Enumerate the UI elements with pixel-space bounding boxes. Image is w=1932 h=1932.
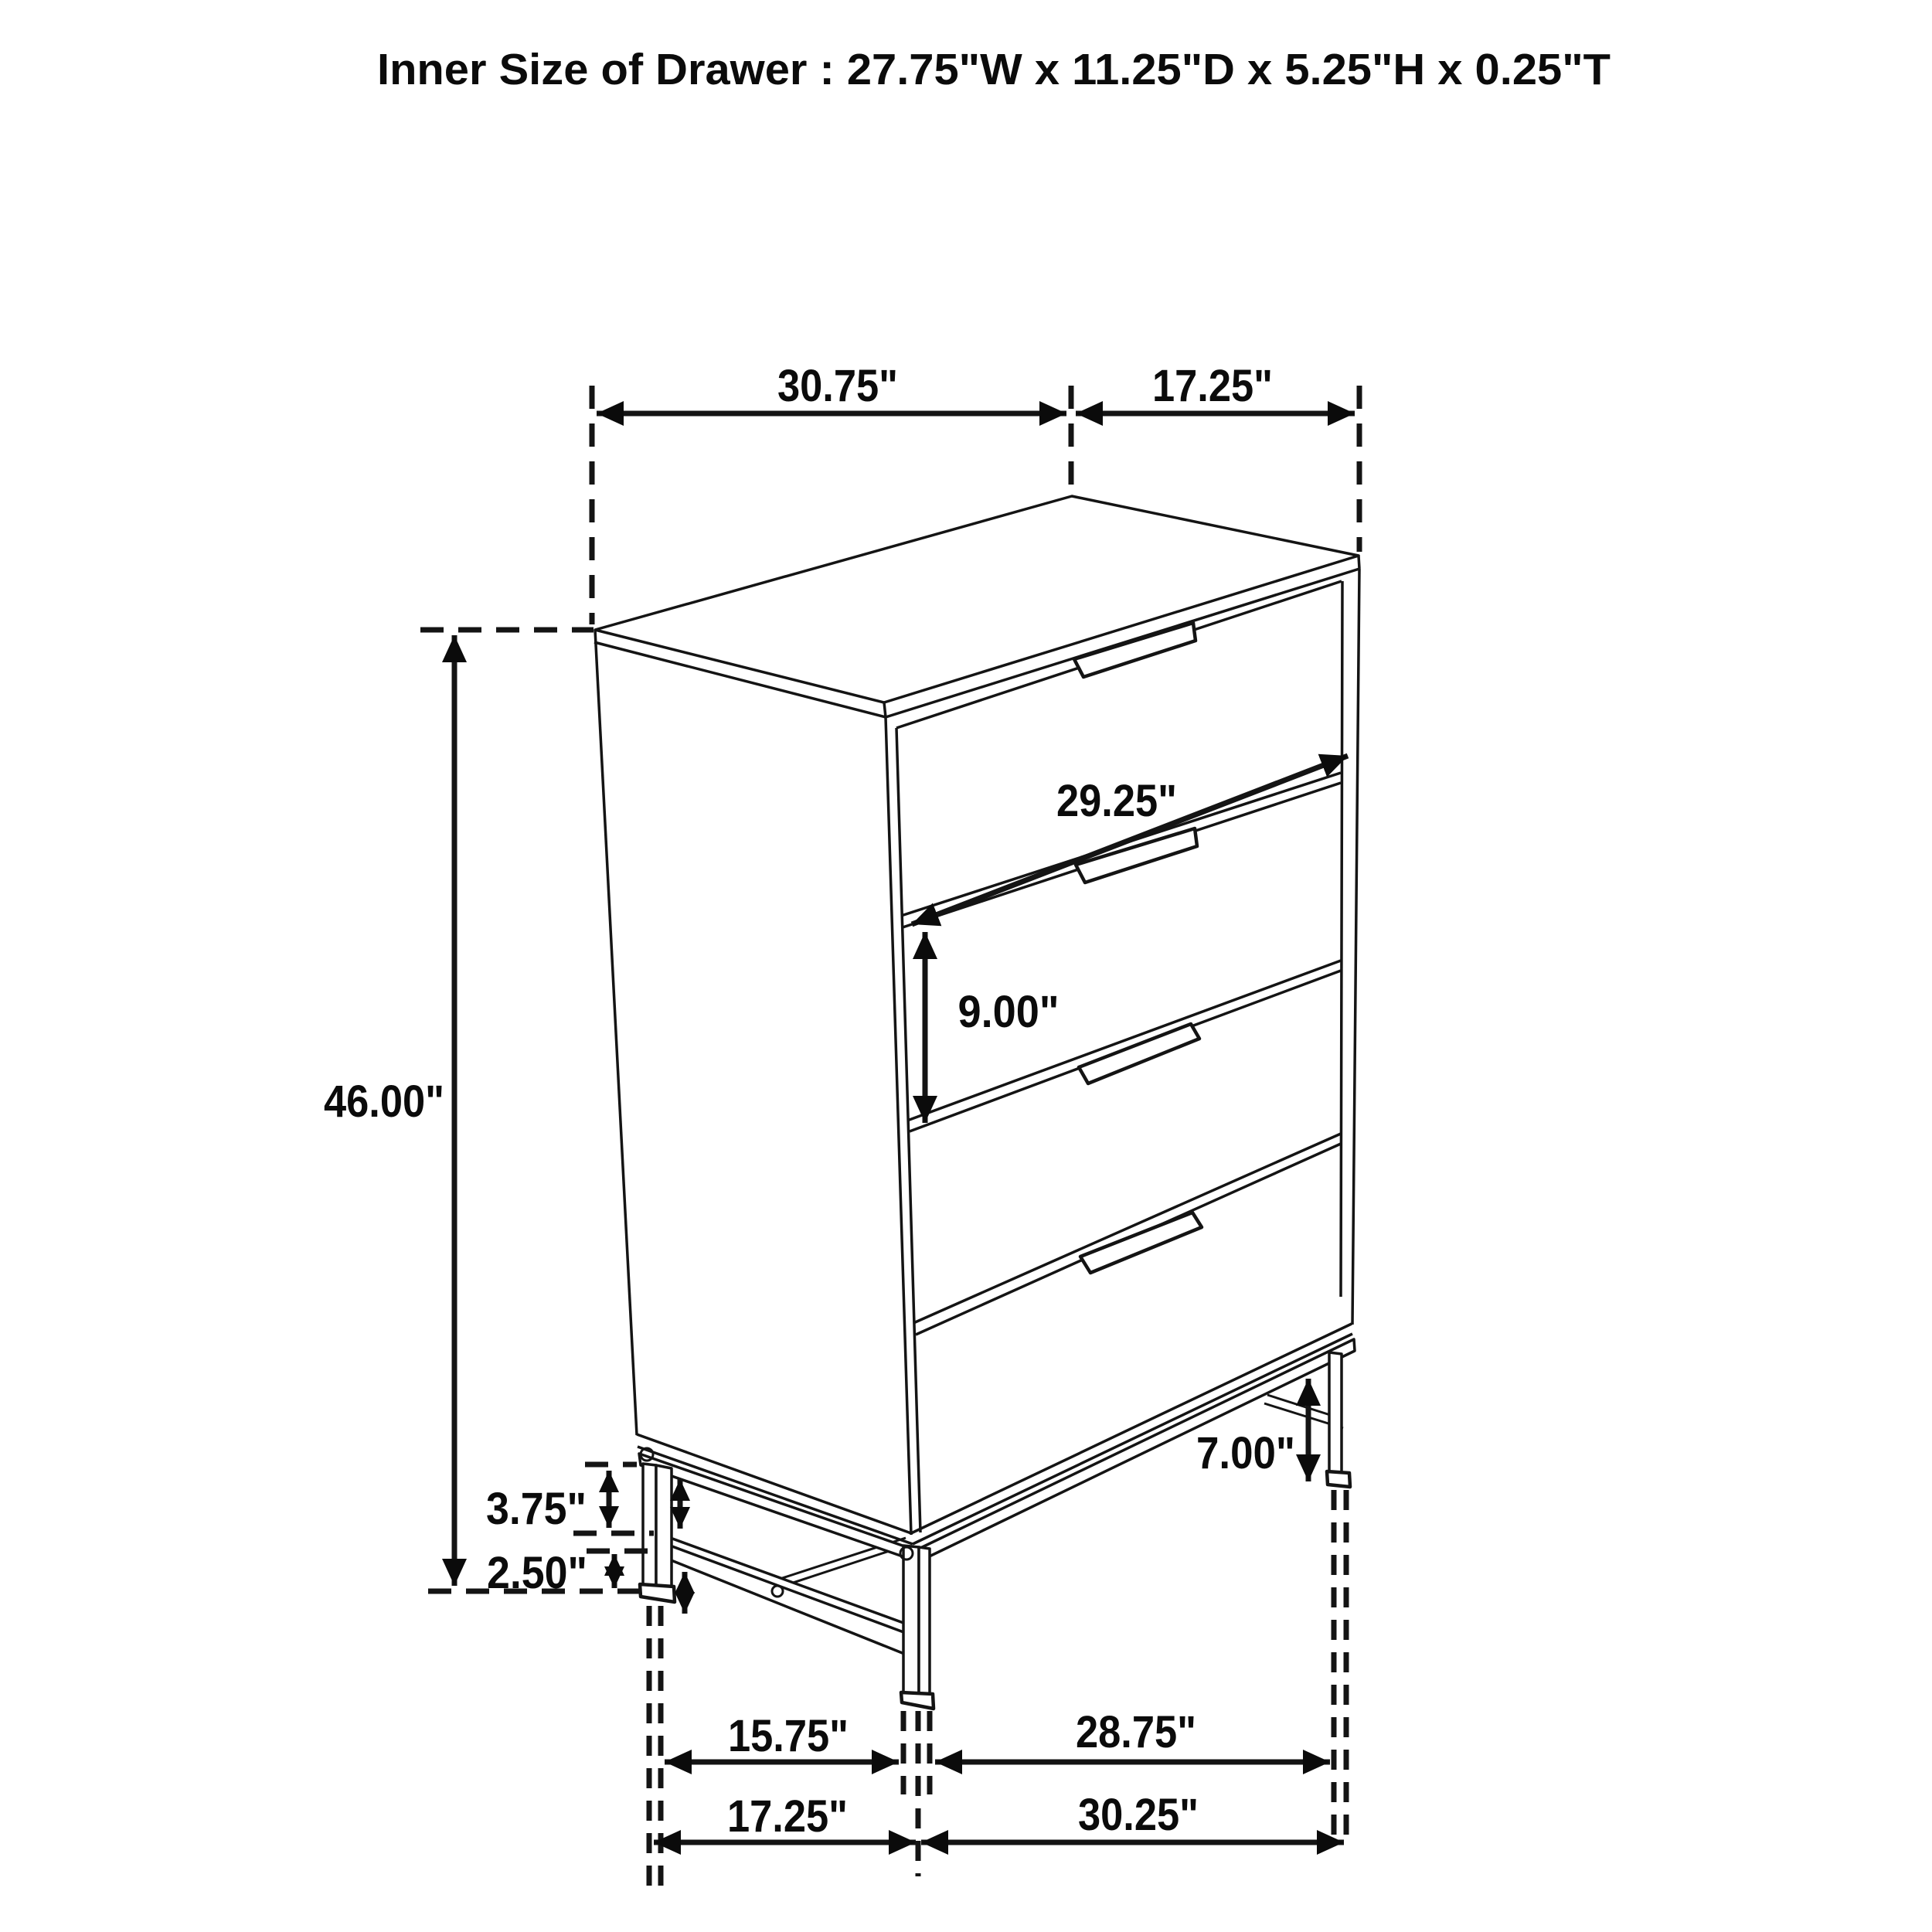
svg-text:9.00": 9.00" — [958, 987, 1060, 1037]
svg-text:17.25": 17.25" — [1152, 361, 1273, 411]
svg-text:7.00": 7.00" — [1196, 1428, 1295, 1478]
svg-text:15.75": 15.75" — [728, 1711, 849, 1761]
svg-text:17.25": 17.25" — [727, 1791, 848, 1842]
svg-text:46.00": 46.00" — [324, 1077, 444, 1127]
svg-text:2.50": 2.50" — [487, 1548, 587, 1598]
svg-text:29.25": 29.25" — [1056, 776, 1177, 826]
svg-text:30.25": 30.25" — [1078, 1790, 1199, 1840]
svg-text:28.75": 28.75" — [1076, 1707, 1196, 1757]
svg-text:Inner Size of Drawer : 27.75"W: Inner Size of Drawer : 27.75"W x 11.25"D… — [377, 45, 1611, 94]
svg-text:30.75": 30.75" — [777, 361, 898, 411]
svg-text:3.75": 3.75" — [486, 1484, 587, 1534]
